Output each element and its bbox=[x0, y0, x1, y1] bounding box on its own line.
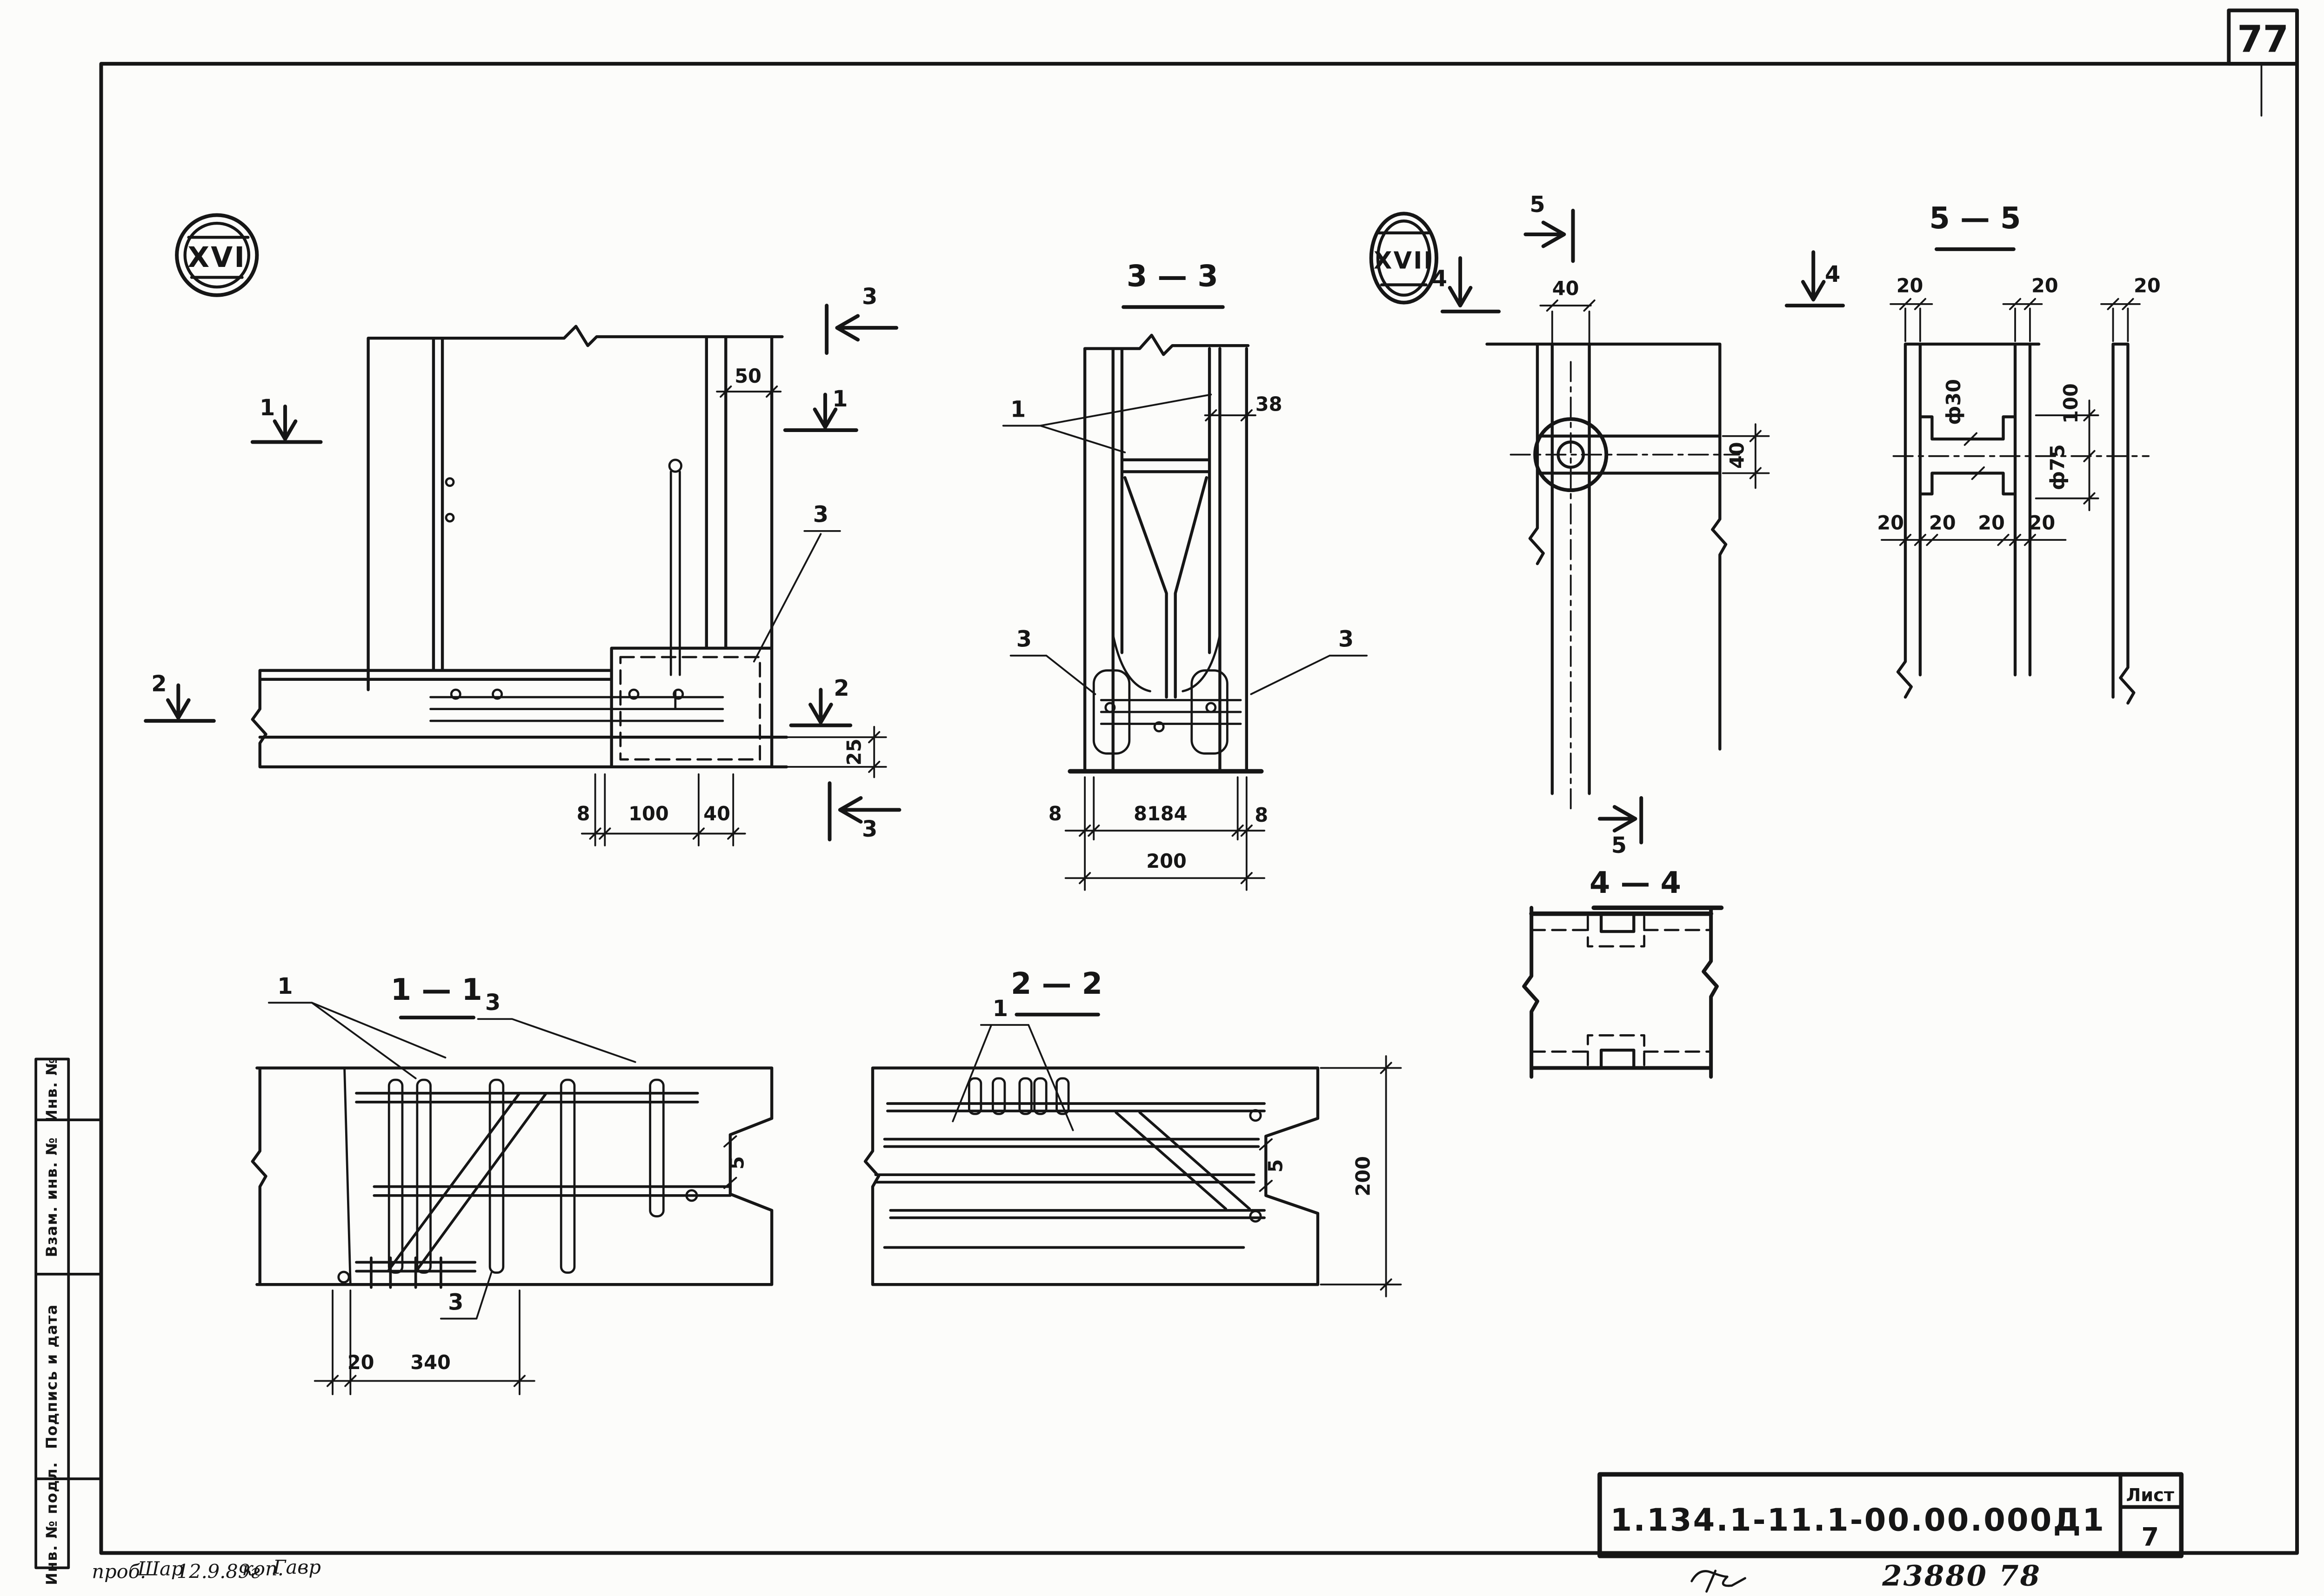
dim-8-left-label: 8 bbox=[1048, 803, 1062, 825]
section-3-arrow-top bbox=[827, 306, 896, 353]
s22-dimensions: 5 200 bbox=[1260, 1056, 1401, 1297]
dim-40-label: 40 bbox=[703, 803, 730, 825]
view-4-4-top-lines bbox=[1531, 908, 1721, 914]
callout-1-label: 1 bbox=[993, 996, 1008, 1022]
callout-3-left-leader bbox=[1011, 656, 1095, 694]
badge-label-xvi: XVI bbox=[187, 241, 246, 274]
document-number: 1.134.1-11.1-00.00.000Д1 bbox=[1610, 1502, 2106, 1538]
dim-20-label: 20 bbox=[347, 1351, 374, 1374]
view-4-4-title: 4 — 4 bbox=[1589, 866, 1681, 900]
dim-f30-label: ф30 bbox=[1943, 379, 1965, 425]
callout-3-leader bbox=[754, 531, 840, 662]
dim-20-top-right-label: 20 bbox=[2134, 274, 2161, 297]
dim-5-label: 5 bbox=[726, 1156, 748, 1170]
section-5-label-bottom: 5 bbox=[1611, 833, 1627, 858]
s44-notches bbox=[1601, 915, 1634, 1066]
view-xvii: XVII 4 4 5 5 40 40 bbox=[1371, 192, 1843, 858]
callout-3-left-label: 3 bbox=[1016, 627, 1032, 652]
s11-stirrups bbox=[339, 1080, 697, 1282]
xvii-section-marks: 4 4 5 5 bbox=[1432, 192, 1843, 858]
drawing-sheet: 77 Инв. № Взам. инв. № Подпись и дата Ин… bbox=[0, 0, 2324, 1596]
dim-40-top-label: 40 bbox=[1552, 278, 1579, 300]
signature-scribble bbox=[1692, 1571, 1745, 1592]
s11-dimensions: 5 20 340 bbox=[315, 1136, 748, 1394]
section-2-label-right: 2 bbox=[834, 676, 849, 701]
callout-3-bottom-label: 3 bbox=[448, 1290, 463, 1315]
dim-40-right-label: 40 bbox=[1726, 442, 1748, 469]
s33-walls bbox=[1085, 335, 1248, 771]
xvi-rebar bbox=[431, 472, 723, 721]
dim-bottom-lines bbox=[1066, 777, 1264, 890]
page-number: 77 bbox=[2237, 18, 2289, 61]
dim-20-bot-4-label: 20 bbox=[2029, 512, 2056, 534]
section-1-label-left: 1 bbox=[260, 395, 275, 421]
dim-100-label: 100 bbox=[628, 803, 669, 825]
dim-20-bot-1-label: 20 bbox=[1877, 512, 1904, 534]
dim-8-label: 8 bbox=[577, 803, 590, 825]
view-1-1-title: 1 — 1 bbox=[391, 973, 482, 1007]
s33-rebar-ends bbox=[1106, 703, 1215, 731]
sheet-number: 7 bbox=[2141, 1523, 2159, 1552]
handwritten-number: 23880 78 bbox=[1882, 1560, 2041, 1593]
view-xvi: XVI 3 3 1 1 2 2 3 bbox=[146, 215, 899, 845]
dim-f75-label: ф75 bbox=[2046, 444, 2069, 490]
detail-badge-xvi: XVI bbox=[177, 215, 257, 295]
dim-50-label: 50 bbox=[735, 365, 761, 387]
dim-20-top-left-label: 20 bbox=[1897, 274, 1923, 297]
s22-outline bbox=[865, 1068, 1318, 1285]
xvi-dimensions: 50 25 8 100 40 bbox=[577, 365, 886, 845]
section-5-label-top: 5 bbox=[1529, 192, 1545, 218]
dim-20-top-left-line bbox=[1890, 299, 1932, 341]
dim-20-bot-3-label: 20 bbox=[1978, 512, 2005, 534]
dim-20-bottom-line bbox=[1882, 535, 2066, 545]
dim-20-bot-2-label: 20 bbox=[1929, 512, 1956, 534]
badge-label-xvii: XVII bbox=[1374, 247, 1434, 274]
note-signature-2: Гавр bbox=[273, 1556, 321, 1578]
callout-1-label: 1 bbox=[1010, 397, 1026, 422]
section-4-label-left: 4 bbox=[1432, 266, 1447, 292]
stamp-cell-label: Инв. № bbox=[43, 1057, 60, 1122]
view-5-5: 5 — 5 20 20 20 20 20 20 20 ф30 100 ф75 bbox=[1877, 201, 2160, 703]
callout-3-label: 3 bbox=[813, 502, 828, 528]
section-1-label-right: 1 bbox=[832, 386, 848, 412]
dim-340-label: 340 bbox=[410, 1351, 451, 1374]
dim-200-label: 200 bbox=[1352, 1156, 1375, 1197]
stamp-cell-label: Инв. № подл. bbox=[43, 1462, 60, 1585]
s44-hidden-lines bbox=[1531, 917, 1711, 1065]
section-4-arrow-left bbox=[1442, 258, 1499, 312]
callout-3-right-leader bbox=[1251, 656, 1367, 694]
callout-3-top-leader bbox=[478, 1019, 635, 1062]
dim-184-label: 8184 bbox=[1134, 803, 1187, 825]
stamp-column: Инв. № Взам. инв. № Подпись и дата Инв. … bbox=[36, 1057, 101, 1585]
s11-rebar bbox=[356, 1093, 730, 1288]
xvi-rebar-ends bbox=[446, 460, 683, 699]
dim-20-top-mid-label: 20 bbox=[2031, 274, 2058, 297]
xvii-walls bbox=[1487, 344, 1726, 793]
xvii-dimensions: 40 40 bbox=[1540, 278, 1769, 488]
stamp-cell-label: Взам. инв. № bbox=[43, 1137, 60, 1257]
dim-20-top-mid-line bbox=[2003, 299, 2042, 341]
callout-3-top-label: 3 bbox=[485, 990, 501, 1016]
view-2-2: 2 — 2 1 5 200 bbox=[865, 967, 1401, 1297]
view-1-1: 1 — 1 1 3 3 5 20 340 bbox=[253, 973, 772, 1394]
title-block: 1.134.1-11.1-00.00.000Д1 Лист 7 23880 78 bbox=[1600, 1474, 2181, 1592]
callout-1-label: 1 bbox=[277, 974, 293, 999]
s33-callouts: 1 3 3 bbox=[1003, 394, 1367, 694]
section-2-label-left: 2 bbox=[151, 671, 167, 697]
section-3-label-bottom: 3 bbox=[862, 817, 877, 842]
bottom-notes: проб. Шар 12.9.89г коп. Гавр bbox=[92, 1556, 321, 1583]
section-4-label-right: 4 bbox=[1825, 262, 1840, 287]
view-4-4: 4 — 4 bbox=[1524, 866, 1721, 1077]
xvi-callout-3: 3 bbox=[754, 502, 840, 662]
view-3-3-title: 3 — 3 bbox=[1127, 259, 1218, 294]
sheet-frame: 77 bbox=[101, 10, 2297, 1553]
callout-1-leader bbox=[1003, 394, 1211, 452]
section-5-arrow-top bbox=[1525, 211, 1573, 261]
dim-25-line bbox=[784, 727, 886, 777]
dim-20-340-line bbox=[315, 1290, 534, 1394]
dim-5-label: 5 bbox=[1264, 1159, 1287, 1173]
view-5-5-title: 5 — 5 bbox=[1929, 201, 2021, 236]
s11-cut-edge bbox=[345, 1068, 351, 1285]
dim-8-right-label: 8 bbox=[1255, 804, 1268, 826]
xvi-walls bbox=[253, 326, 787, 767]
detail-badge-xvii: XVII bbox=[1371, 213, 1436, 302]
dim-38-label: 38 bbox=[1255, 393, 1282, 416]
view-3-3: 3 — 3 1 3 3 38 8 8184 8 200 bbox=[1003, 259, 1367, 890]
section-3-label-top: 3 bbox=[862, 284, 877, 310]
dim-100-label: 100 bbox=[2060, 383, 2082, 424]
dim-20-top-right-line bbox=[2101, 299, 2140, 341]
callout-1-leader bbox=[953, 1025, 1073, 1130]
stamp-cell-label: Подпись и дата bbox=[43, 1304, 60, 1449]
dim-40-top-line bbox=[1540, 300, 1594, 344]
sheet-label: Лист bbox=[2126, 1485, 2175, 1506]
s11-outline bbox=[253, 1068, 772, 1285]
dim-200-label: 200 bbox=[1146, 850, 1187, 872]
s11-callouts: 1 3 3 bbox=[269, 974, 635, 1319]
view-2-2-title: 2 — 2 bbox=[1011, 967, 1102, 1001]
callout-3-right-label: 3 bbox=[1338, 627, 1354, 652]
dim-25-label: 25 bbox=[843, 738, 866, 765]
drawing-canvas: 77 Инв. № Взам. инв. № Подпись и дата Ин… bbox=[0, 0, 2324, 1596]
